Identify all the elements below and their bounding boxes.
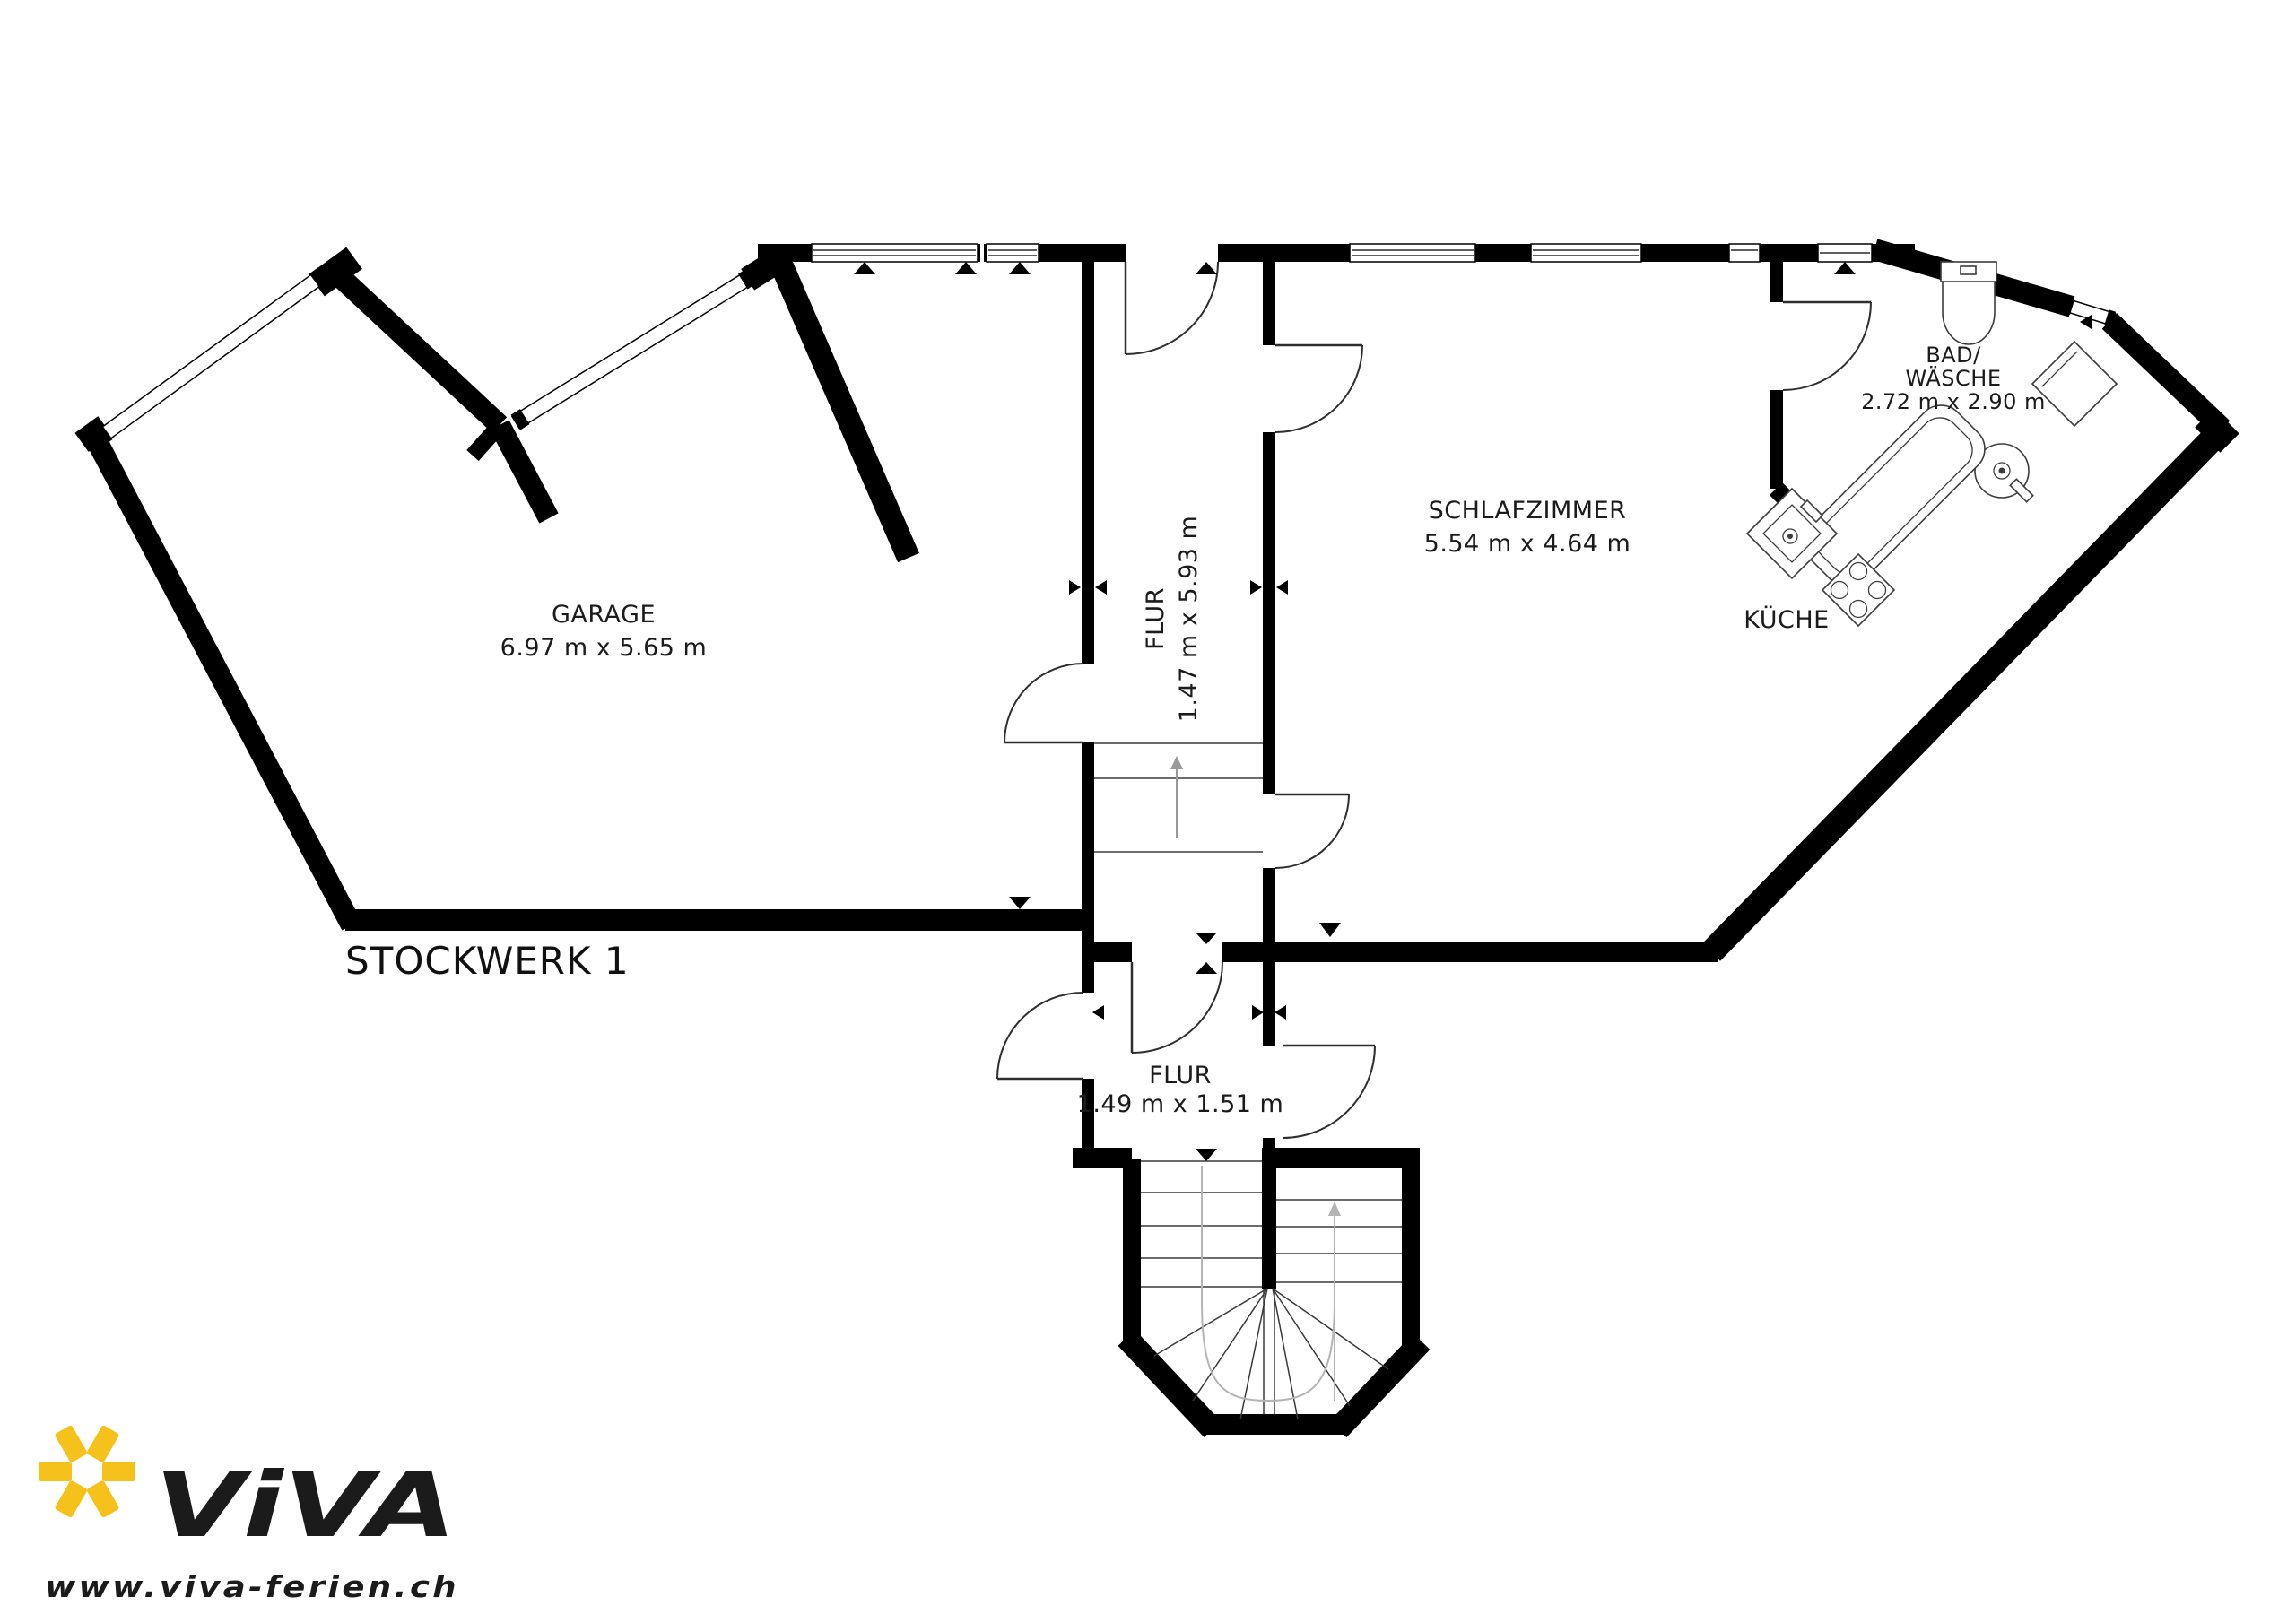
floor-title: STOCKWERK 1 [345, 939, 630, 983]
flur-upper-dims: 1.47 m x 5.93 m [1175, 516, 1203, 723]
step-direction-arrow-icon [1170, 756, 1183, 769]
logo-website-text: www.viva-ferien.ch [45, 1569, 459, 1604]
sun-icon [39, 1425, 135, 1519]
door-flur-lower-top [1132, 962, 1222, 1053]
corridor-steps [1094, 743, 1263, 852]
bad-label-line2: WÄSCHE [1905, 365, 2001, 391]
door-schlafzimmer-a [1275, 345, 1362, 432]
door-entrance [1283, 1046, 1375, 1138]
toilet-icon [1941, 262, 1996, 344]
flur-lower-label: FLUR [1149, 1062, 1212, 1089]
door-schlafzimmer-b [1275, 794, 1349, 868]
logo-brand-text: ViVA [154, 1453, 457, 1558]
garage-window-left [93, 267, 328, 446]
kueche-label: KÜCHE [1744, 605, 1829, 634]
flur-lower-dims: 1.49 m x 1.51 m [1077, 1090, 1284, 1118]
logo: ViVA www.viva-ferien.ch [39, 1425, 459, 1604]
flur-upper-label: FLUR [1142, 587, 1170, 650]
floorplan-page: GARAGE 6.97 m x 5.65 m FLUR 1.47 m x 5.9… [0, 0, 2296, 1623]
floorplan-drawing: GARAGE 6.97 m x 5.65 m FLUR 1.47 m x 5.9… [0, 0, 2296, 1623]
doors [997, 262, 1871, 1138]
door-garage-lower [997, 993, 1083, 1079]
door-flur-top [1126, 262, 1218, 354]
schlafzimmer-label: SCHLAFZIMMER [1429, 497, 1627, 525]
windows [93, 244, 2116, 446]
garage-dims: 6.97 m x 5.65 m [500, 634, 708, 662]
bad-dims: 2.72 m x 2.90 m [1861, 389, 2046, 414]
stair-direction-arrow-icon [1328, 1202, 1341, 1216]
bad-label-line1: BAD/ [1926, 343, 1981, 368]
door-bad [1783, 302, 1871, 390]
garage-label: GARAGE [552, 601, 656, 629]
garage-window-right [511, 268, 757, 430]
door-garage-upper [1004, 664, 1083, 742]
bathtub-icon [1794, 395, 1994, 595]
opening-markers [215, 262, 2092, 1161]
schlafzimmer-dims: 5.54 m x 4.64 m [1424, 530, 1631, 558]
